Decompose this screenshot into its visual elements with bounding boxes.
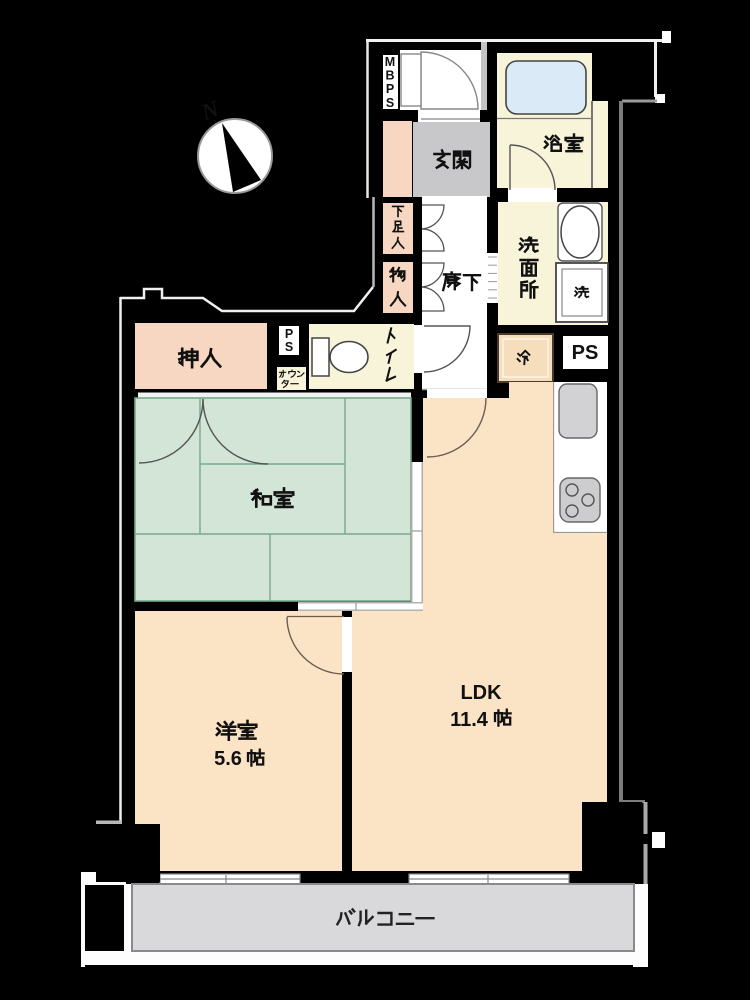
svg-text:P: P (285, 327, 293, 341)
svg-text:PS: PS (572, 342, 599, 364)
svg-text:S: S (386, 96, 394, 110)
svg-text:LDK: LDK (460, 682, 502, 704)
svg-text:5.6: 5.6 (214, 748, 242, 770)
svg-text:B: B (385, 69, 394, 83)
svg-text:M: M (385, 55, 395, 69)
svg-text:P: P (386, 82, 394, 96)
svg-text:11.4: 11.4 (450, 709, 489, 731)
svg-text:S: S (285, 340, 293, 354)
